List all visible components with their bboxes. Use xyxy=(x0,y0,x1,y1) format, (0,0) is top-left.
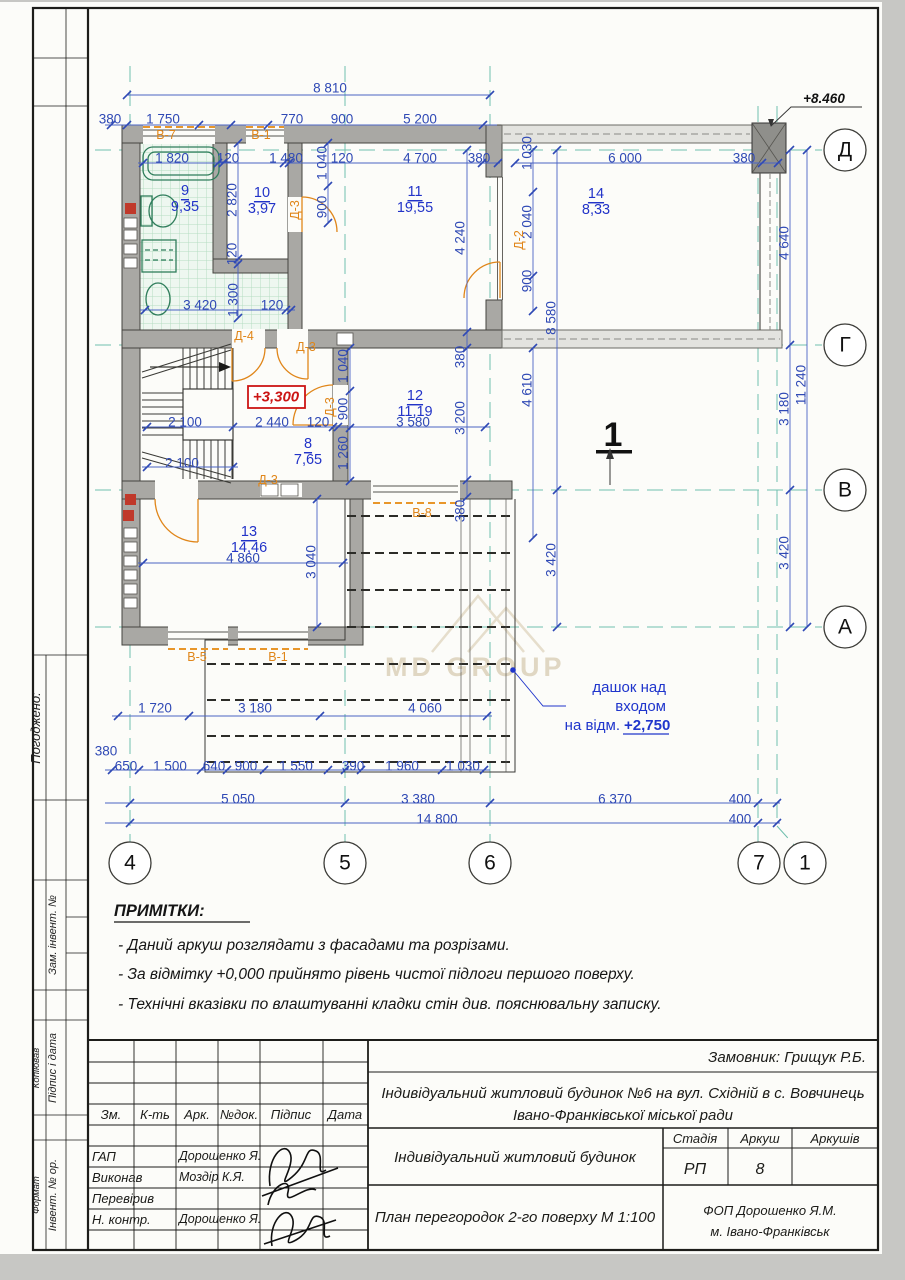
sidebar-label-sign-date: Підпис і дата xyxy=(47,1033,59,1103)
dimension-label: 640 xyxy=(203,759,226,774)
note-item: - Технічні вказівки по влаштуванні кладк… xyxy=(118,996,662,1013)
room-number: 14 xyxy=(588,186,604,202)
dimension-label: 2 100 xyxy=(168,415,202,430)
section-mark-label: 1 xyxy=(604,416,623,454)
sidebar-label-agreed: Погоджено: xyxy=(28,692,43,764)
header-signature: Підпис xyxy=(271,1107,312,1122)
dimension-label: 380 xyxy=(453,500,468,523)
project-name-line1: Індивідуальний житловий будинок №6 на ву… xyxy=(381,1085,864,1102)
room-number: 8 xyxy=(304,436,312,452)
dimension-label: 3 180 xyxy=(238,701,272,716)
dimension-label: 900 xyxy=(315,196,330,219)
dimension-label: 5 050 xyxy=(221,792,255,807)
name-ncontrol: Дорошенко Я. xyxy=(177,1212,261,1226)
floor-plan-svg: Погоджено: Зам. інвент. № Підпис і дата … xyxy=(0,0,905,1280)
axis-bubble-label: В xyxy=(838,479,852,502)
dimension-label: 380 xyxy=(468,151,491,166)
dimension-label: 8 810 xyxy=(313,81,347,96)
axis-bubble-label: 1 xyxy=(799,852,811,875)
sidebar-label-format: Формат xyxy=(31,1176,42,1214)
opening-label: В-7 xyxy=(156,128,176,142)
opening-label: В-5 xyxy=(187,650,207,664)
room-number: 9 xyxy=(181,183,189,199)
dimension-label: 3 420 xyxy=(183,298,217,313)
sidebar-label-customer-inv: Зам. інвент. № xyxy=(47,895,59,975)
opening-label: В-1 xyxy=(251,128,271,142)
dimension-label: 380 xyxy=(99,112,122,127)
room-area: 9,35 xyxy=(171,199,199,215)
role-executed: Виконав xyxy=(92,1170,143,1185)
sidebar-label-copied: Копіював xyxy=(31,1048,42,1088)
dimension-label: 1 030 xyxy=(446,759,480,774)
opening-label: Д-3 xyxy=(323,397,337,417)
axis-bubble-label: 7 xyxy=(753,852,765,875)
dimension-label: 1 300 xyxy=(226,283,241,317)
dimension-label: 380 xyxy=(95,744,118,759)
role-ncontrol: Н. контр. xyxy=(92,1212,151,1227)
sheet-label: Аркуш xyxy=(739,1131,780,1146)
opening-label: Д-3 xyxy=(288,200,302,220)
dimension-label: 4 700 xyxy=(403,151,437,166)
dimension-label: 1 750 xyxy=(146,112,180,127)
dimension-label: 380 xyxy=(733,151,756,166)
canopy-note-line3: на відм. xyxy=(565,717,620,734)
axis-bubble-label: Г xyxy=(839,334,850,357)
customer-label: Замовник: Грищук Р.Б. xyxy=(708,1049,866,1066)
dimension-label: 2 440 xyxy=(255,415,289,430)
role-checked: Перевірив xyxy=(92,1191,154,1206)
roof-elevation-value: +8.460 xyxy=(803,91,845,106)
dimension-label: 3 420 xyxy=(544,543,559,577)
dimension-label: 1 480 xyxy=(269,151,303,166)
header-docnum: №док. xyxy=(220,1107,258,1122)
red-box xyxy=(125,494,136,505)
dimension-label: 6 000 xyxy=(608,151,642,166)
dimension-label: 3 420 xyxy=(777,536,792,570)
room-number: 10 xyxy=(254,185,270,201)
opening-label: В-8 xyxy=(412,506,432,520)
dimension-label: 4 240 xyxy=(453,221,468,255)
stage-value: РП xyxy=(684,1161,707,1178)
dimension-label: 1 500 xyxy=(153,759,187,774)
dimension-label: 120 xyxy=(217,151,240,166)
dimension-label: 380 xyxy=(453,346,468,369)
name-executed: Моздір К.Я. xyxy=(179,1170,245,1184)
header-count: К-ть xyxy=(140,1107,170,1122)
sidebar-label-inv-orig: Інвент. № ор. xyxy=(47,1159,59,1231)
org-line2: м. Івано-Франківськ xyxy=(710,1224,830,1239)
dimension-label: 1 820 xyxy=(155,151,189,166)
room-area: 8,33 xyxy=(582,202,610,218)
canopy-note-elevation: +2,750 xyxy=(624,717,670,734)
dimension-label: 1 550 xyxy=(279,759,313,774)
dimension-label: 1 030 xyxy=(520,136,535,170)
dimension-label: 1 040 xyxy=(315,146,330,180)
opening-label: В-1 xyxy=(268,650,288,664)
name-gap: Дорошенко Я. xyxy=(177,1149,261,1163)
axis-bubble-label: 4 xyxy=(124,852,136,875)
role-gap: ГАП xyxy=(92,1149,116,1164)
axis-bubble-label: 5 xyxy=(339,852,351,875)
dimension-label: 2 820 xyxy=(225,183,240,217)
dimension-label: 650 xyxy=(115,759,138,774)
dimension-label: 5 200 xyxy=(403,112,437,127)
axis-bubble-label: 6 xyxy=(484,852,496,875)
axis-bubble-label: Д xyxy=(838,139,852,162)
header-change: Зм. xyxy=(101,1107,122,1122)
project-name-line2: Івано-Франківської міської ради xyxy=(513,1107,734,1124)
stage-label: Стадія xyxy=(673,1131,717,1146)
dimension-label: 4 610 xyxy=(520,373,535,407)
dimension-label: 4 060 xyxy=(408,701,442,716)
dimension-label: 120 xyxy=(331,151,354,166)
room-area: 3,97 xyxy=(248,201,276,217)
dimension-label: 4 640 xyxy=(777,226,792,260)
dimension-label: 900 xyxy=(336,398,351,421)
axis-bubble-label: А xyxy=(838,616,852,639)
red-box xyxy=(123,510,134,521)
dimension-label: 14 800 xyxy=(416,812,457,827)
room-area: 7,65 xyxy=(294,452,322,468)
room-area: 19,55 xyxy=(397,200,433,216)
dimension-label: 900 xyxy=(235,759,258,774)
dimension-label: 900 xyxy=(331,112,354,127)
opening-label: Д-3 xyxy=(296,340,316,354)
dimension-label: 6 370 xyxy=(598,792,632,807)
watermark-text: MD GROUP xyxy=(385,652,566,682)
dimension-label: 400 xyxy=(729,812,752,827)
floor-elevation-value: +3,300 xyxy=(253,389,300,406)
dimension-label: 3 200 xyxy=(453,401,468,435)
dimension-label: 1 720 xyxy=(138,701,172,716)
dimension-label: 120 xyxy=(225,243,240,266)
room-area: 11,19 xyxy=(397,404,432,420)
dimension-label: 1 260 xyxy=(336,436,351,470)
sheets-label: Аркушів xyxy=(809,1131,859,1146)
dimension-label: 120 xyxy=(261,298,284,313)
dimension-label: 2 100 xyxy=(165,456,199,471)
dimension-label: 3 040 xyxy=(304,545,319,579)
note-item: - За відмітку +0,000 прийнято рівень чис… xyxy=(118,966,635,983)
room-number: 13 xyxy=(241,524,257,540)
sheet-number: 8 xyxy=(756,1161,765,1178)
dimension-label: 1 960 xyxy=(385,759,419,774)
dimension-label: 1 040 xyxy=(336,349,351,383)
notes-heading: ПРИМІТКИ: xyxy=(114,902,205,920)
room-area: 14,46 xyxy=(231,540,267,556)
dimension-label: 11 240 xyxy=(794,365,809,405)
room-number: 11 xyxy=(407,184,422,200)
canopy-note-line2: входом xyxy=(615,698,666,715)
opening-label: Д-4 xyxy=(234,329,254,343)
canopy-note-line1: дашок над xyxy=(592,679,666,696)
header-date: Дата xyxy=(326,1107,362,1122)
floor-elevation: +3,300 xyxy=(248,386,305,408)
object-name: Індивідуальний житловий будинок xyxy=(394,1149,637,1166)
drawing-title: План перегородок 2-го поверху М 1:100 xyxy=(375,1209,656,1226)
red-box xyxy=(125,203,136,214)
org-line1: ФОП Дорошенко Я.М. xyxy=(703,1203,836,1218)
opening-label: Д-2 xyxy=(512,230,526,250)
dimension-label: 400 xyxy=(729,792,752,807)
dimension-label: 390 xyxy=(342,759,365,774)
room-number: 12 xyxy=(407,388,423,404)
dimension-label: 3 380 xyxy=(401,792,435,807)
dimension-label: 8 580 xyxy=(544,301,559,335)
header-sheet: Арк. xyxy=(183,1107,210,1122)
opening-label: Д-3 xyxy=(258,473,278,487)
dimension-label: 900 xyxy=(520,270,535,293)
dimension-label: 770 xyxy=(281,112,304,127)
photographed-drawing-sheet: Погоджено: Зам. інвент. № Підпис і дата … xyxy=(0,0,905,1280)
dimension-label: 3 180 xyxy=(777,392,792,426)
note-item: - Даний аркуш розглядати з фасадами та р… xyxy=(118,937,510,954)
